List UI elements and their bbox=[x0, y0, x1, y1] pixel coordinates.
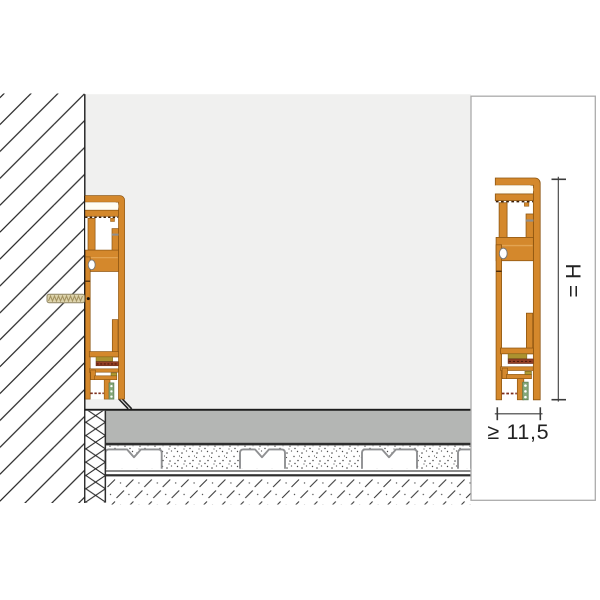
svg-text:= H: = H bbox=[562, 263, 586, 297]
svg-text:≥ 11,5: ≥ 11,5 bbox=[488, 420, 550, 444]
